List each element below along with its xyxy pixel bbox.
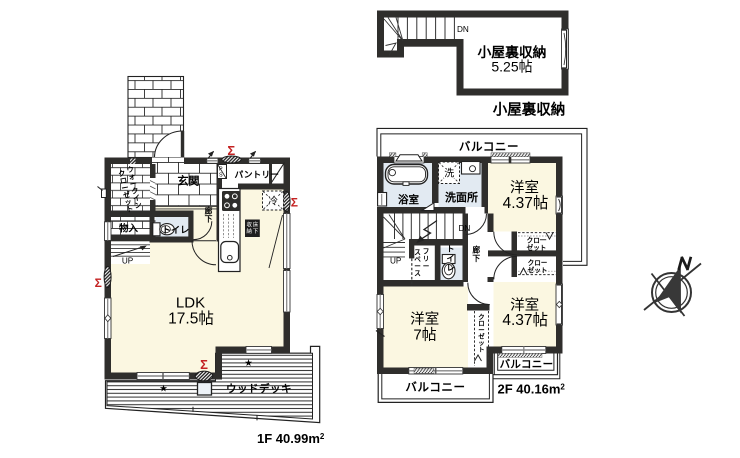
svg-text:ト: ト — [125, 204, 134, 214]
svg-text:1F 40.99m2: 1F 40.99m2 — [257, 431, 325, 446]
svg-text:DN: DN — [459, 224, 471, 233]
svg-text:バルコニー: バルコニー — [459, 141, 519, 154]
svg-text:クロ一: クロ一 — [527, 236, 547, 245]
svg-text:ス: ス — [414, 249, 421, 257]
svg-text:S: S — [219, 172, 223, 178]
svg-text:4.37帖: 4.37帖 — [503, 194, 549, 212]
svg-text:リ: リ — [423, 255, 430, 263]
svg-text:5.25帖: 5.25帖 — [491, 59, 532, 75]
svg-text:LDK: LDK — [176, 295, 205, 312]
svg-text:物入: 物入 — [119, 223, 139, 235]
svg-text:バルコニー: バルコニー — [500, 358, 554, 370]
svg-text:ト: ト — [478, 346, 484, 354]
svg-text:ス: ス — [414, 270, 421, 278]
svg-text:イ: イ — [447, 254, 455, 263]
svg-text:下: 下 — [253, 228, 259, 235]
svg-text:パントリー: パントリー — [235, 168, 280, 179]
svg-text:冷: 冷 — [268, 194, 278, 207]
svg-text:Σ: Σ — [95, 276, 102, 290]
svg-text:Σ: Σ — [227, 143, 235, 158]
svg-text:バルコニー: バルコニー — [405, 381, 465, 394]
svg-text:下: 下 — [205, 215, 213, 224]
svg-text:洗: 洗 — [444, 167, 454, 179]
svg-text:Σ: Σ — [200, 357, 208, 372]
svg-text:ー: ー — [414, 264, 421, 271]
svg-text:ー: ー — [423, 264, 430, 271]
svg-text:床: 床 — [253, 221, 259, 229]
svg-text:収: 収 — [246, 222, 252, 229]
svg-text:洋室: 洋室 — [410, 311, 439, 328]
svg-text:ゼット: ゼット — [527, 243, 547, 252]
svg-text:★: ★ — [244, 358, 253, 369]
svg-text:ウッドデッキ: ウッドデッキ — [226, 382, 292, 395]
svg-text:洋室: 洋室 — [510, 180, 539, 197]
svg-text:フ: フ — [423, 248, 430, 256]
svg-text:UP: UP — [122, 257, 134, 266]
svg-text:Σ: Σ — [291, 196, 298, 210]
svg-text:レ: レ — [447, 264, 455, 273]
svg-text:トイレ: トイレ — [162, 225, 190, 235]
svg-text:小屋裏収納: 小屋裏収納 — [493, 101, 566, 119]
svg-text:DN: DN — [457, 25, 469, 34]
svg-text:納: 納 — [246, 227, 252, 235]
svg-text:17.5帖: 17.5帖 — [168, 310, 214, 328]
svg-text:2F 40.16m2: 2F 40.16m2 — [498, 382, 566, 397]
svg-text:7帖: 7帖 — [413, 327, 436, 344]
svg-text:洗面所: 洗面所 — [445, 190, 478, 204]
svg-text:浴室: 浴室 — [398, 193, 419, 206]
svg-text:ト: ト — [447, 245, 455, 254]
svg-text:UP: UP — [390, 256, 402, 265]
svg-text:下: 下 — [472, 254, 480, 263]
svg-text:ペ: ペ — [414, 256, 421, 264]
svg-text:★: ★ — [159, 384, 168, 395]
svg-text:クロー: クロー — [528, 258, 548, 267]
svg-text:ゼット: ゼット — [528, 265, 548, 274]
svg-text:4.37帖: 4.37帖 — [502, 311, 548, 329]
svg-text:玄関: 玄関 — [178, 174, 200, 188]
svg-text:ン: ン — [134, 200, 143, 210]
